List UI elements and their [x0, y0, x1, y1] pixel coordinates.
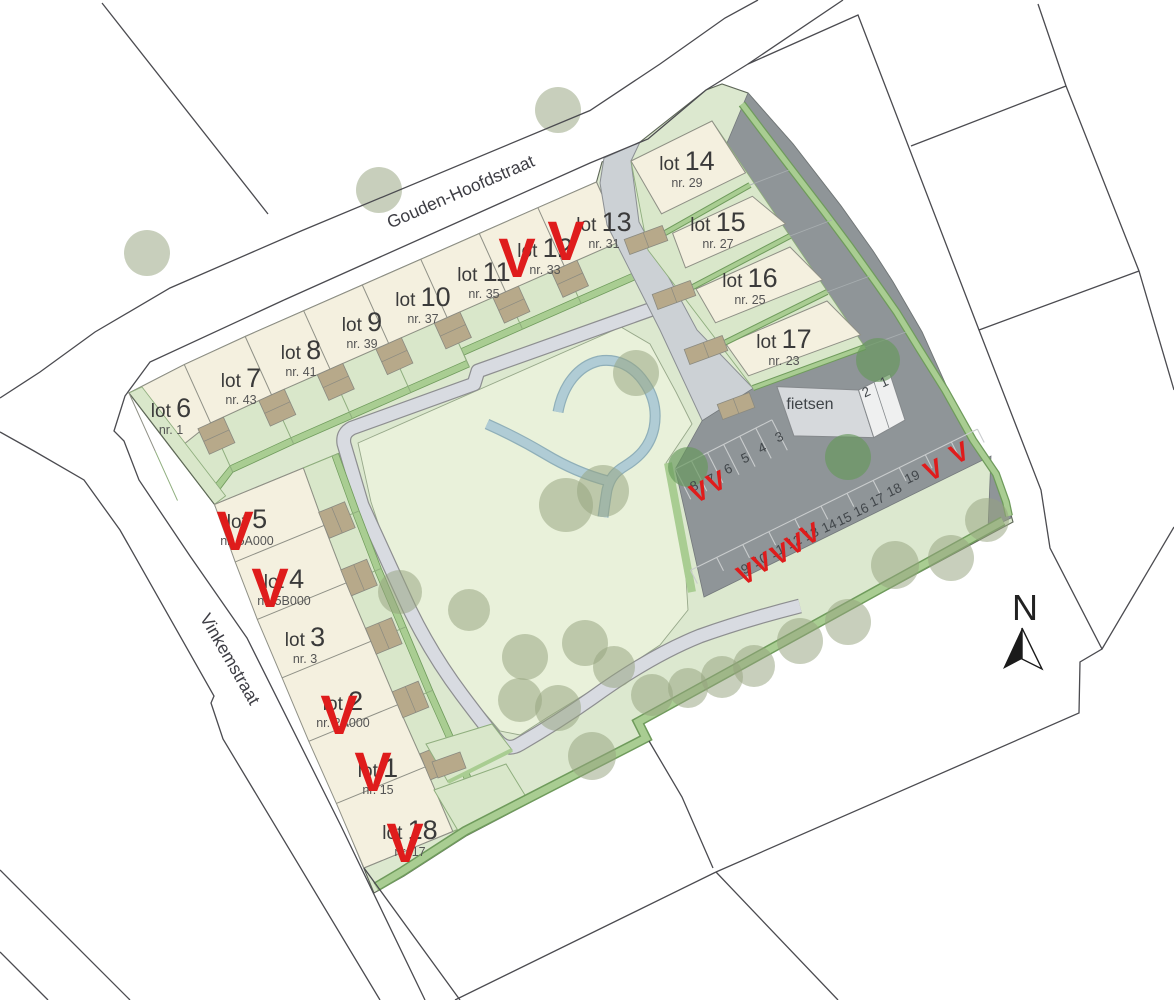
- svg-text:nr. 23: nr. 23: [768, 354, 799, 368]
- svg-text:nr. 25: nr. 25: [734, 293, 765, 307]
- svg-text:nr. 41: nr. 41: [285, 365, 316, 379]
- svg-text:nr. 3: nr. 3: [293, 652, 317, 666]
- svg-text:V: V: [251, 556, 288, 619]
- svg-text:V: V: [386, 811, 423, 874]
- svg-text:nr. 37: nr. 37: [407, 312, 438, 326]
- svg-text:nr. 43: nr. 43: [225, 393, 256, 407]
- svg-text:nr. 35: nr. 35: [468, 287, 499, 301]
- svg-text:V: V: [547, 209, 584, 272]
- svg-text:nr. 27: nr. 27: [702, 237, 733, 251]
- svg-text:nr. 39: nr. 39: [346, 337, 377, 351]
- svg-text:fietsen: fietsen: [786, 396, 833, 413]
- svg-text:nr. 31: nr. 31: [588, 237, 619, 251]
- svg-text:nr. 1: nr. 1: [159, 423, 183, 437]
- svg-text:V: V: [498, 226, 535, 289]
- svg-text:V: V: [354, 740, 391, 803]
- svg-text:N: N: [1012, 587, 1038, 628]
- svg-text:V: V: [320, 683, 357, 746]
- svg-text:nr. 29: nr. 29: [671, 176, 702, 190]
- svg-text:V: V: [216, 499, 253, 562]
